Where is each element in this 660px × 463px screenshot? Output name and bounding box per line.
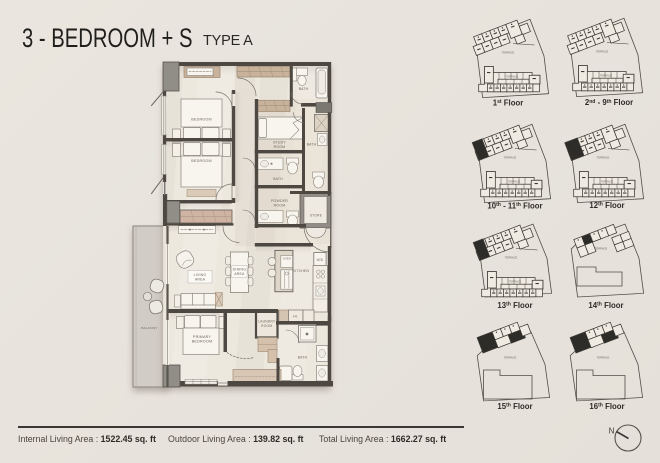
svg-text:16th Floor: 16th Floor (589, 402, 624, 411)
svg-text:1st Floor: 1st Floor (493, 99, 524, 108)
svg-text:DINING: DINING (233, 268, 247, 272)
svg-text:N: N (609, 427, 615, 436)
svg-text:AREA: AREA (195, 277, 206, 281)
svg-text:BATH: BATH (273, 177, 283, 181)
svg-text:2nd - 9th Floor: 2nd - 9th Floor (585, 98, 633, 107)
svg-text:BEDROOM: BEDROOM (191, 159, 211, 163)
svg-text:AREA: AREA (234, 272, 245, 276)
svg-text:13th Floor: 13th Floor (497, 301, 532, 310)
svg-text:BATH: BATH (299, 87, 309, 91)
svg-text:ROOM: ROOM (261, 324, 272, 328)
svg-text:14th Floor: 14th Floor (588, 301, 623, 310)
svg-text:BEDROOM: BEDROOM (192, 340, 212, 344)
svg-text:FR.: FR. (293, 315, 298, 319)
svg-text:10th - 11th Floor: 10th - 11th Floor (487, 202, 542, 211)
svg-text:12th Floor: 12th Floor (589, 201, 624, 210)
svg-text:BATH: BATH (298, 356, 308, 360)
svg-text:ROOM: ROOM (274, 145, 286, 149)
svg-text:OVEN: OVEN (283, 256, 291, 260)
svg-text:W/D: W/D (317, 258, 324, 262)
svg-text:15th Floor: 15th Floor (497, 402, 532, 411)
svg-text:PRIMARY: PRIMARY (193, 335, 211, 339)
svg-text:STORE: STORE (310, 214, 323, 218)
svg-text:POWDER: POWDER (271, 199, 288, 203)
svg-text:BALCONY: BALCONY (141, 326, 157, 330)
svg-text:ROOM: ROOM (274, 204, 286, 208)
svg-text:BEDROOM: BEDROOM (191, 118, 211, 122)
svg-text:STUDY: STUDY (273, 141, 286, 145)
svg-text:BATH: BATH (307, 142, 317, 146)
svg-text:KITCHEN: KITCHEN (293, 269, 310, 273)
svg-text:LIVING: LIVING (194, 273, 207, 277)
